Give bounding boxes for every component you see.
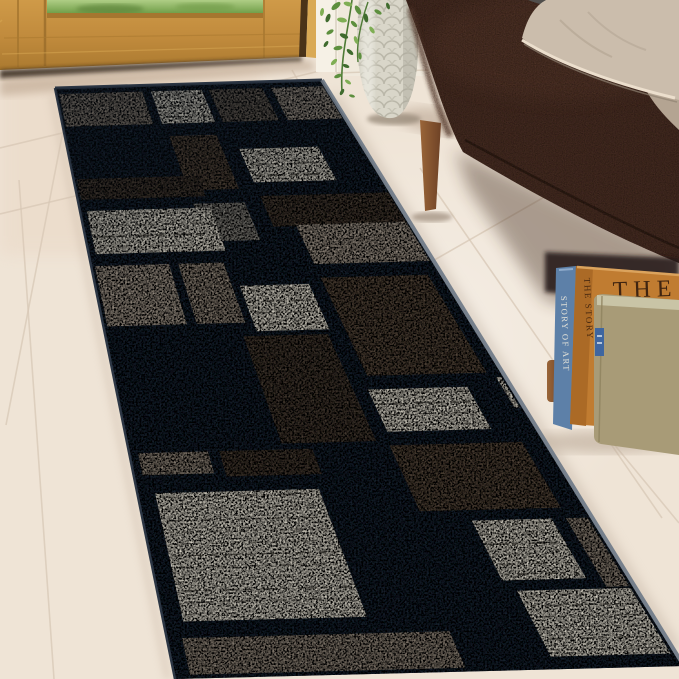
- product-photo: STORY OF ART THE STORY THE: [0, 0, 679, 679]
- grass-shade: [175, 3, 235, 11]
- book-blue-top-edge: [559, 269, 573, 270]
- leg-shadow: [412, 212, 452, 222]
- books: STORY OF ART THE STORY THE: [533, 252, 679, 455]
- scene-canvas: STORY OF ART THE STORY THE: [0, 0, 679, 679]
- glazing-bead: [47, 13, 263, 18]
- grass-shade: [76, 4, 144, 14]
- book-khaki: [594, 294, 679, 455]
- book-khaki-tag: [595, 328, 604, 356]
